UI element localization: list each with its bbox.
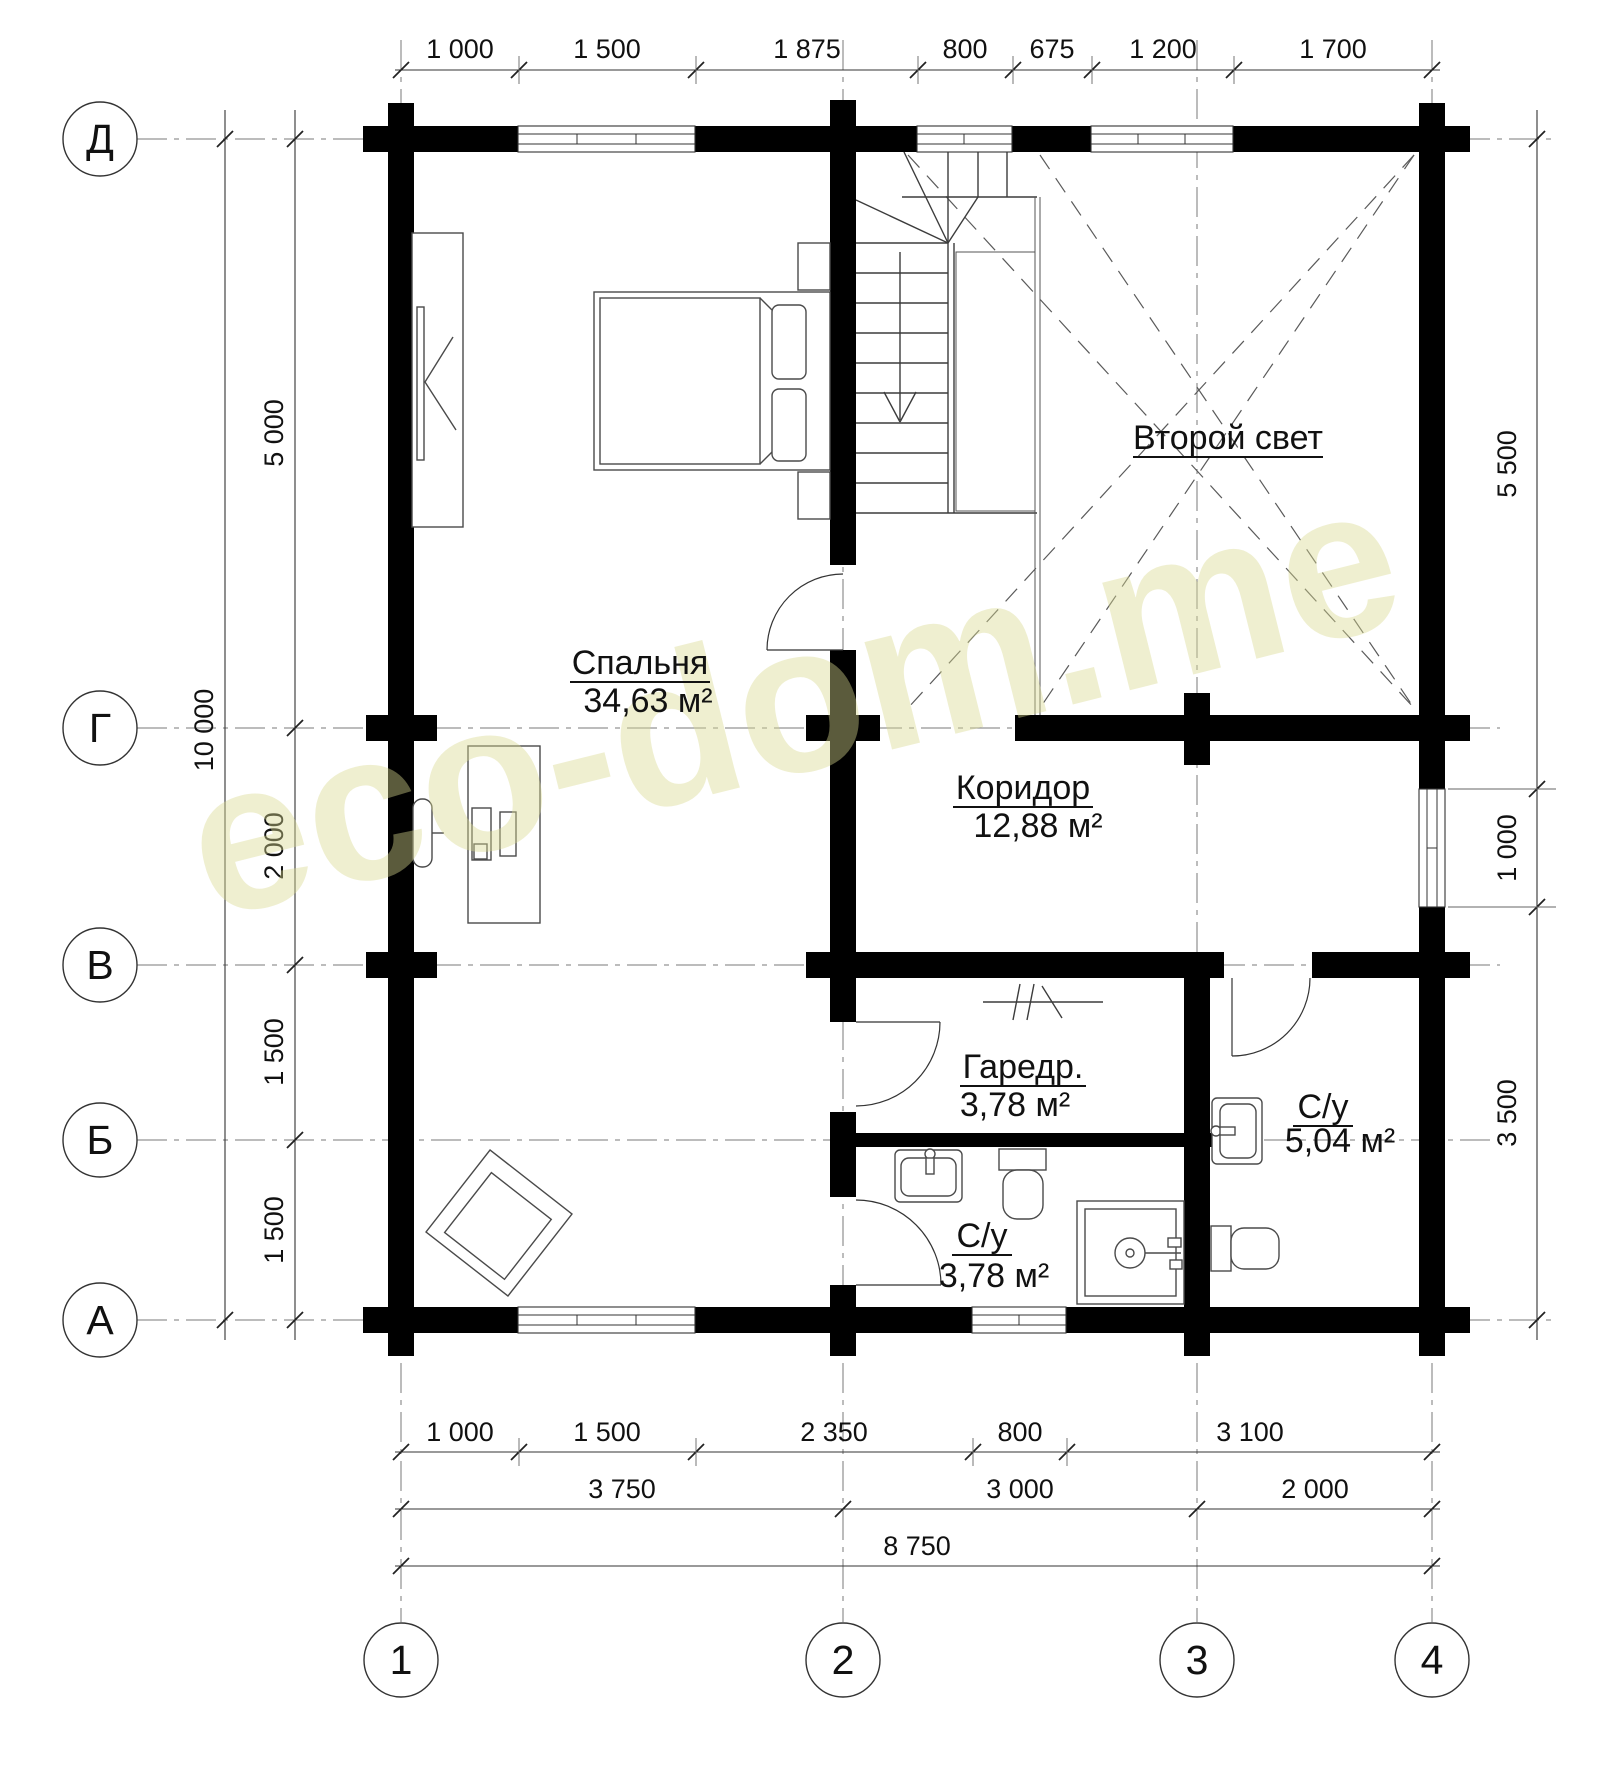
room-bath-big-name: С/у — [1298, 1088, 1349, 1126]
wall-axis2 — [830, 100, 856, 565]
wall-row-b — [830, 1133, 1230, 1147]
axis-col-2: 2 — [806, 1623, 880, 1697]
axis-col-3: 3 — [1160, 1623, 1234, 1697]
door-wardrobe — [856, 1022, 940, 1106]
window-right — [1419, 789, 1445, 907]
dim-bottom-total: 8 750 — [883, 1531, 951, 1561]
dim-bottom1-1: 1 500 — [573, 1417, 641, 1447]
wall-right — [1419, 103, 1445, 789]
axis-col-1: 1 — [364, 1623, 438, 1697]
window-top-2 — [917, 126, 1012, 152]
room-bath-big-area: 5,04 м² — [1285, 1122, 1395, 1160]
window-top-1 — [518, 126, 695, 152]
dim-top-4: 675 — [1029, 34, 1074, 64]
wall-bottom — [363, 1307, 518, 1333]
dim-right-0: 5 500 — [1492, 430, 1522, 498]
axis-row-g: Г — [63, 691, 137, 765]
room-wardrobe-name: Гаредр. — [963, 1048, 1084, 1086]
lounge-chair-rotated — [426, 1150, 572, 1296]
window-top-3 — [1091, 126, 1233, 152]
sink-bath-small — [895, 1149, 962, 1202]
shower-tray — [1077, 1201, 1184, 1304]
axis-row-d: Д — [63, 102, 137, 176]
dim-bottom1-0: 1 000 — [426, 1417, 494, 1447]
dim-right-1: 1 000 — [1492, 814, 1522, 882]
nightstand — [798, 243, 830, 290]
floor-plan-drawing: 1 000 1 500 1 875 800 675 1 200 1 700 1 … — [0, 0, 1604, 1788]
window-bottom-2 — [972, 1307, 1066, 1333]
room-corridor-area: 12,88 м² — [973, 807, 1102, 845]
axis-row-b: Б — [63, 1103, 137, 1177]
dim-bottom1-3: 800 — [997, 1417, 1042, 1447]
dim-left-2: 1 500 — [259, 1018, 289, 1086]
door-bath-big — [1232, 978, 1310, 1056]
toilet-bath-small — [999, 1149, 1046, 1219]
room-corridor-name: Коридор — [956, 769, 1090, 807]
pillow — [772, 389, 806, 461]
dim-bottom1-2: 2 350 — [800, 1417, 868, 1447]
dim-top-6: 1 700 — [1299, 34, 1367, 64]
axis-col-4: 4 — [1395, 1623, 1469, 1697]
dim-bottom2-2: 2 000 — [1281, 1474, 1349, 1504]
wardrobe-rail — [983, 984, 1103, 1020]
room-bath-small-name: С/у — [957, 1217, 1008, 1255]
dim-bottom2-0: 3 750 — [588, 1474, 656, 1504]
axis-row-a-label: А — [86, 1297, 114, 1343]
wall-row-v — [366, 952, 437, 978]
dim-left-0: 5 000 — [259, 399, 289, 467]
floor-plan-page: 1 000 1 500 1 875 800 675 1 200 1 700 1 … — [0, 0, 1604, 1788]
toilet-bath-big — [1211, 1226, 1279, 1271]
window-bottom-1 — [518, 1307, 695, 1333]
room-second-light-name: Второй свет — [1133, 419, 1323, 457]
axis-col-3-label: 3 — [1186, 1637, 1209, 1683]
bed — [594, 243, 830, 519]
axis-row-a: А — [63, 1283, 137, 1357]
dim-bottom1-4: 3 100 — [1216, 1417, 1284, 1447]
dim-top-5: 1 200 — [1129, 34, 1197, 64]
room-bedroom-area: 34,63 м² — [583, 682, 712, 720]
room-bath-small-area: 3,78 м² — [939, 1257, 1049, 1295]
stairs-down-arrow — [884, 252, 916, 422]
dim-bottom2-1: 3 000 — [986, 1474, 1054, 1504]
door-bath-small — [856, 1200, 941, 1285]
dim-top-2: 1 875 — [773, 34, 841, 64]
axis-row-v-label: В — [86, 942, 113, 988]
axis-row-v: В — [63, 928, 137, 1002]
axis-col-4-label: 4 — [1421, 1637, 1444, 1683]
wall-top — [363, 126, 518, 152]
dim-left-3: 1 500 — [259, 1196, 289, 1264]
tv-cabinet — [412, 233, 463, 527]
axis-col-2-label: 2 — [832, 1637, 855, 1683]
pillow — [772, 305, 806, 379]
axis-row-d-label: Д — [86, 116, 114, 162]
dim-top-0: 1 000 — [426, 34, 494, 64]
axis-row-g-label: Г — [89, 705, 111, 751]
dim-top-1: 1 500 — [573, 34, 641, 64]
axis-row-b-label: Б — [87, 1117, 114, 1163]
axis-col-1-label: 1 — [390, 1637, 413, 1683]
dim-right-2: 3 500 — [1492, 1079, 1522, 1147]
sink-bath-big — [1211, 1098, 1262, 1164]
nightstand — [798, 472, 830, 519]
room-wardrobe-area: 3,78 м² — [960, 1086, 1070, 1124]
watermark-text: eco-dom.me — [164, 436, 1421, 963]
dim-top-3: 800 — [942, 34, 987, 64]
room-bedroom-name: Спальня — [572, 644, 709, 682]
